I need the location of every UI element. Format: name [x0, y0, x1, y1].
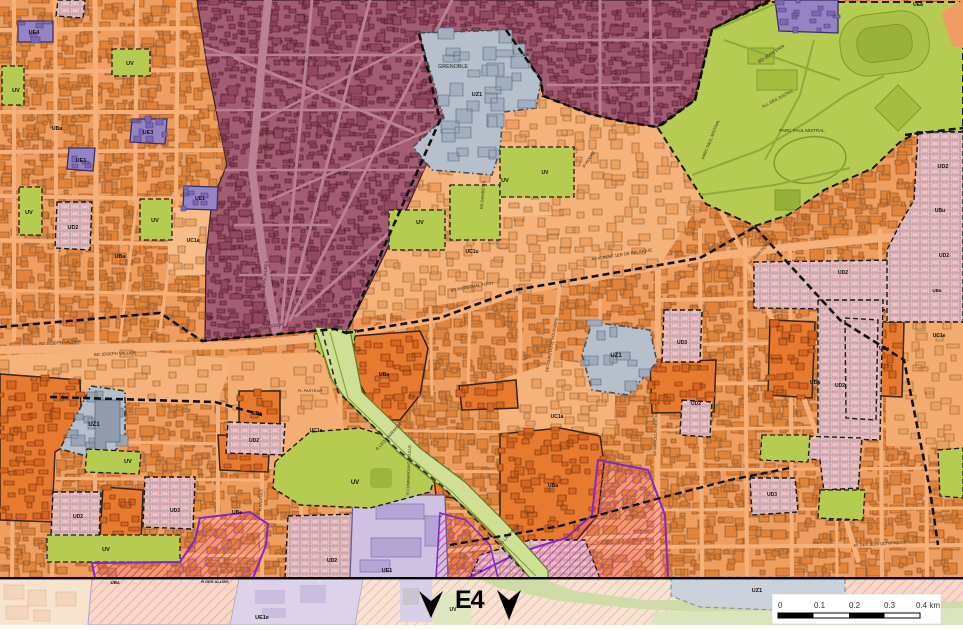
- svg-text:UC1u: UC1u: [465, 249, 478, 255]
- svg-text:R DES ALLIES: R DES ALLIES: [201, 579, 229, 584]
- svg-text:UD2: UD2: [691, 401, 701, 407]
- svg-text:UV: UV: [102, 547, 110, 553]
- svg-text:UEa: UEa: [913, 2, 923, 8]
- svg-text:UD2: UD2: [249, 438, 259, 444]
- svg-text:UD2: UD2: [835, 383, 845, 389]
- svg-text:UD2: UD2: [73, 514, 83, 520]
- svg-text:UE1: UE1: [195, 196, 205, 202]
- svg-text:PL PASTEUR: PL PASTEUR: [298, 388, 323, 393]
- svg-text:UV: UV: [126, 61, 134, 67]
- svg-text:UD2: UD2: [937, 164, 948, 170]
- svg-text:UE1: UE1: [382, 568, 393, 574]
- svg-text:UBa: UBa: [52, 126, 62, 132]
- svg-text:0.4 km: 0.4 km: [916, 601, 940, 610]
- svg-text:UE3: UE3: [143, 130, 154, 136]
- svg-text:UC1a: UC1a: [187, 238, 200, 244]
- svg-text:UE1e: UE1e: [255, 615, 269, 621]
- svg-text:UC1e: UC1e: [933, 333, 946, 339]
- svg-text:UD3: UD3: [170, 508, 180, 514]
- svg-text:UC1a: UC1a: [551, 414, 564, 420]
- svg-text:UV: UV: [542, 170, 550, 176]
- svg-text:UV: UV: [12, 88, 20, 94]
- svg-text:UZ1: UZ1: [88, 422, 100, 428]
- svg-text:UV: UV: [151, 218, 159, 224]
- svg-text:UZ1: UZ1: [610, 353, 622, 359]
- svg-text:R ANATOLE: R ANATOLE: [258, 489, 264, 512]
- svg-text:UE1: UE1: [76, 158, 87, 164]
- svg-text:UBa: UBa: [932, 288, 941, 293]
- svg-text:UZ1: UZ1: [752, 588, 762, 594]
- svg-text:GRENOBLE: GRENOBLE: [438, 64, 468, 70]
- svg-text:UD2: UD2: [939, 253, 949, 259]
- svg-text:PARC PAUL MISTRAL: PARC PAUL MISTRAL: [779, 128, 825, 133]
- svg-text:UBa: UBa: [114, 254, 126, 260]
- svg-text:UV: UV: [124, 459, 132, 465]
- svg-text:UBa: UBa: [110, 580, 119, 585]
- svg-text:0: 0: [778, 601, 783, 610]
- svg-text:UBa: UBa: [252, 411, 262, 417]
- svg-text:UBa: UBa: [548, 483, 558, 489]
- svg-text:UC1a: UC1a: [472, 568, 483, 573]
- svg-text:UBa: UBa: [879, 346, 889, 352]
- svg-text:UBu: UBu: [935, 208, 945, 214]
- svg-text:0.1: 0.1: [814, 601, 826, 610]
- svg-text:0.3: 0.3: [884, 601, 896, 610]
- svg-text:UV: UV: [25, 210, 33, 216]
- svg-text:UE4: UE4: [29, 30, 41, 36]
- svg-text:UBa: UBa: [810, 380, 820, 386]
- svg-text:UC1a: UC1a: [310, 428, 323, 434]
- svg-text:UD2: UD2: [838, 270, 848, 276]
- svg-text:UZ1: UZ1: [472, 92, 482, 98]
- svg-text:UBa: UBa: [232, 510, 242, 516]
- svg-text:E4: E4: [455, 586, 485, 614]
- svg-text:UV: UV: [416, 220, 424, 226]
- svg-text:0.2: 0.2: [849, 601, 861, 610]
- svg-text:UBa: UBa: [379, 372, 389, 378]
- svg-text:R ABBE GREGOIRE: R ABBE GREGOIRE: [281, 58, 318, 63]
- svg-text:UV: UV: [501, 178, 509, 184]
- svg-text:UD3: UD3: [767, 492, 777, 498]
- svg-text:UD3: UD3: [677, 340, 687, 346]
- svg-text:UV: UV: [351, 480, 359, 486]
- svg-text:UD2: UD2: [327, 558, 337, 564]
- svg-text:UD2: UD2: [67, 225, 78, 231]
